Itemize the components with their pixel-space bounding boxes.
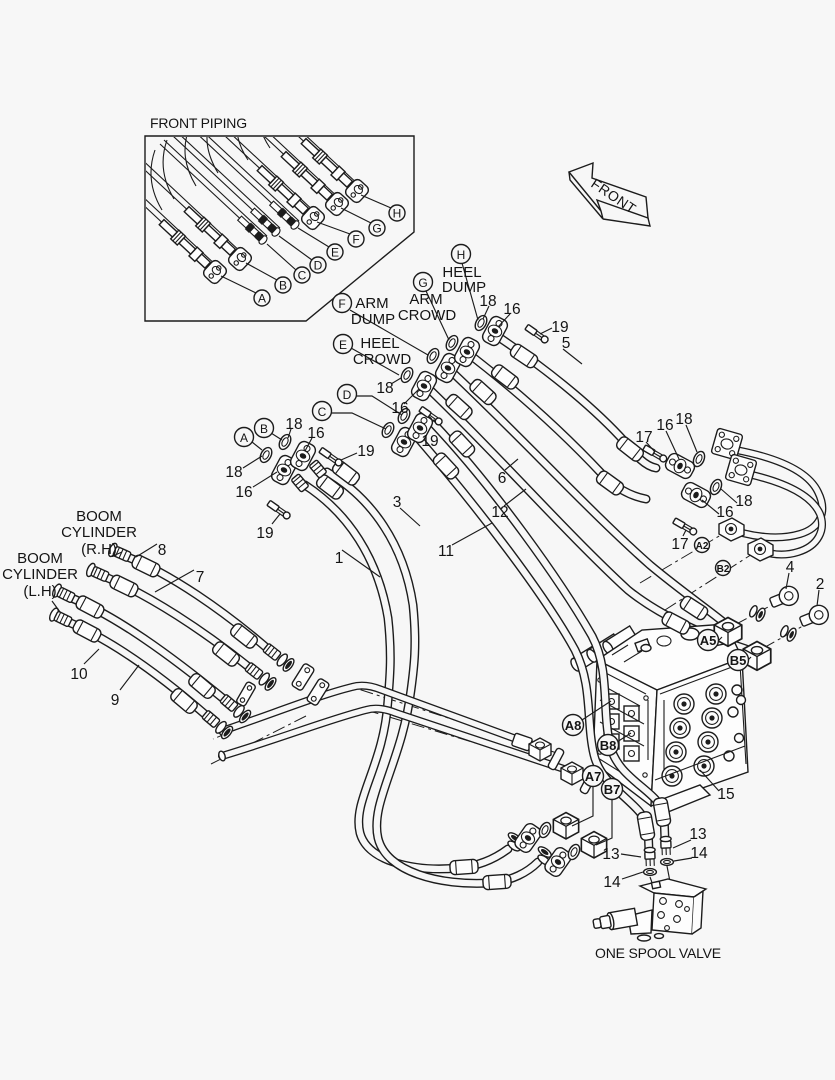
svg-text:16: 16 <box>235 484 252 501</box>
svg-text:H: H <box>457 248 466 262</box>
svg-text:13: 13 <box>602 846 619 863</box>
svg-text:A7: A7 <box>585 769 602 784</box>
svg-text:18: 18 <box>675 411 692 428</box>
svg-text:14: 14 <box>603 874 621 891</box>
svg-text:17: 17 <box>635 429 652 446</box>
svg-text:A: A <box>240 431 248 445</box>
svg-text:B5: B5 <box>730 653 747 668</box>
svg-text:B7: B7 <box>604 782 621 797</box>
svg-text:CYLINDER: CYLINDER <box>2 566 78 583</box>
svg-text:19: 19 <box>256 525 273 542</box>
svg-text:(L.H): (L.H) <box>23 583 56 600</box>
svg-text:11: 11 <box>438 543 454 560</box>
svg-text:ONE SPOOL VALVE: ONE SPOOL VALVE <box>595 945 721 961</box>
svg-text:14: 14 <box>690 845 708 862</box>
svg-text:16: 16 <box>307 425 324 442</box>
svg-text:A: A <box>258 292 266 306</box>
svg-text:H: H <box>393 207 402 221</box>
svg-text:3: 3 <box>393 494 402 511</box>
svg-text:A5: A5 <box>700 633 717 648</box>
svg-text:DUMP: DUMP <box>351 311 395 328</box>
svg-text:16: 16 <box>503 301 520 318</box>
svg-text:16: 16 <box>391 400 408 417</box>
svg-text:19: 19 <box>421 433 438 450</box>
svg-text:G: G <box>418 276 427 290</box>
svg-text:ARM: ARM <box>355 295 388 312</box>
svg-text:5: 5 <box>562 335 571 352</box>
svg-text:F: F <box>338 297 345 311</box>
svg-text:2: 2 <box>816 576 825 593</box>
svg-text:13: 13 <box>689 826 706 843</box>
svg-text:D: D <box>343 388 352 402</box>
svg-text:B: B <box>279 279 287 293</box>
svg-text:ARM: ARM <box>409 291 442 308</box>
svg-text:1: 1 <box>335 550 344 567</box>
svg-text:12: 12 <box>491 504 508 521</box>
svg-text:F: F <box>352 233 359 247</box>
svg-text:18: 18 <box>285 416 302 433</box>
svg-text:CYLINDER: CYLINDER <box>61 524 137 541</box>
svg-text:CROWD: CROWD <box>353 351 411 368</box>
svg-text:19: 19 <box>357 443 374 460</box>
svg-text:18: 18 <box>735 493 752 510</box>
svg-text:18: 18 <box>479 293 496 310</box>
svg-text:B: B <box>260 422 268 436</box>
svg-text:17: 17 <box>671 536 688 553</box>
svg-text:D: D <box>314 259 323 273</box>
svg-text:B8: B8 <box>600 738 617 753</box>
svg-text:(R.H): (R.H) <box>81 541 117 558</box>
svg-text:A2: A2 <box>696 541 709 552</box>
svg-text:7: 7 <box>196 569 205 586</box>
svg-text:6: 6 <box>498 470 507 487</box>
svg-text:8: 8 <box>158 542 167 559</box>
svg-text:G: G <box>372 222 381 236</box>
svg-text:18: 18 <box>376 380 393 397</box>
svg-text:E: E <box>339 338 347 352</box>
svg-text:A8: A8 <box>565 718 582 733</box>
svg-text:16: 16 <box>656 417 673 434</box>
svg-text:BOOM: BOOM <box>17 550 63 567</box>
svg-text:4: 4 <box>786 559 795 576</box>
svg-text:18: 18 <box>225 464 242 481</box>
svg-text:FRONT PIPING: FRONT PIPING <box>150 115 247 131</box>
svg-text:10: 10 <box>70 666 88 683</box>
svg-text:CROWD: CROWD <box>398 307 456 324</box>
svg-text:BOOM: BOOM <box>76 508 122 525</box>
svg-text:16: 16 <box>716 504 733 521</box>
svg-text:C: C <box>298 269 307 283</box>
svg-text:E: E <box>331 246 339 260</box>
svg-text:19: 19 <box>551 319 568 336</box>
svg-text:9: 9 <box>111 692 120 709</box>
svg-text:C: C <box>318 405 327 419</box>
svg-text:15: 15 <box>717 786 734 803</box>
svg-text:HEEL: HEEL <box>360 335 399 352</box>
svg-text:B2: B2 <box>717 564 730 575</box>
